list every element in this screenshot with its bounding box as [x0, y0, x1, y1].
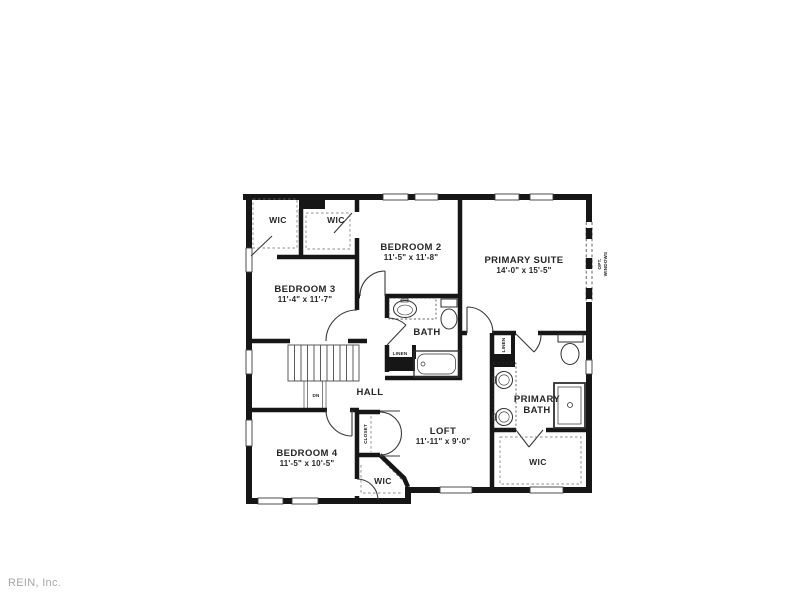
- primary-shower-drain: [568, 403, 573, 408]
- window-bottom-1: [258, 498, 283, 504]
- room-label-bedroom2: BEDROOM 2: [380, 242, 441, 253]
- primary-sink-2-basin: [499, 412, 509, 422]
- label-opt-windows-1: OPT.: [597, 258, 602, 269]
- window-bottom-4: [530, 487, 563, 493]
- window-right-1: [586, 360, 592, 374]
- stairs-outline: [288, 345, 359, 381]
- room-dims-bedroom4: 11'-5" x 10'-5": [280, 459, 335, 468]
- wall-jog-wic: [299, 194, 325, 209]
- bath-toilet-bowl: [441, 309, 457, 329]
- bath-toilet-tank: [441, 299, 457, 307]
- door-primary-bath: [516, 334, 541, 352]
- room-dims-loft: 11'-11" x 9'-0": [416, 437, 470, 446]
- optional-windows: [586, 222, 592, 302]
- primary-toilet-bowl: [561, 344, 579, 365]
- room-dims-primary-suite: 14'-0" x 15'-5": [496, 266, 551, 275]
- label-stairs-down: DN: [312, 393, 320, 398]
- window-top-3: [495, 194, 519, 200]
- bath-sink-basin: [398, 305, 413, 315]
- label-linen-primary: LINEN: [501, 337, 506, 352]
- room-label-primary-bath-2: BATH: [523, 405, 550, 416]
- room-label-loft: LOFT: [430, 426, 456, 437]
- door-primary-suite: [467, 307, 493, 333]
- label-linen-bath: LINEN: [393, 351, 408, 356]
- window-left-2: [246, 350, 252, 374]
- room-label-primary-suite: PRIMARY SUITE: [484, 255, 563, 266]
- window-left-3: [246, 420, 252, 446]
- primary-shower: [554, 383, 585, 428]
- door-bath: [387, 318, 406, 345]
- room-label-bath: BATH: [413, 327, 440, 338]
- room-dims-bedroom2: 11'-5" x 11'-8": [384, 253, 438, 262]
- primary-sink-1: [496, 372, 513, 389]
- primary-sink-2: [496, 409, 513, 426]
- window-top-4: [530, 194, 553, 200]
- room-label-hall: HALL: [357, 387, 384, 398]
- window-top-1: [383, 194, 408, 200]
- label-closet: CLOSET: [363, 424, 368, 444]
- floor-plan: WIC WIC BEDROOM 2 11'-5" x 11'-8" BEDROO…: [0, 0, 800, 600]
- wall-chunk-linen-primary: [491, 354, 515, 367]
- stairs: [288, 345, 359, 408]
- window-bottom-2: [292, 498, 318, 504]
- bath-tub-drain: [421, 362, 425, 366]
- window-bottom-3: [440, 487, 472, 493]
- wall-chunk-linen-bath: [385, 357, 415, 371]
- door-bedroom4: [326, 410, 352, 436]
- window-left-1: [246, 248, 252, 272]
- room-label-primary-bath-1: PRIMARY: [514, 394, 561, 405]
- room-label-bedroom4: BEDROOM 4: [276, 448, 337, 459]
- door-bedroom2: [360, 271, 385, 296]
- optional-window-mullion-3: [586, 288, 592, 299]
- room-label-bedroom3: BEDROOM 3: [274, 284, 335, 295]
- watermark: REIN, Inc.: [8, 577, 61, 589]
- bath-tub-basin: [418, 354, 456, 374]
- door-wic-a: [251, 236, 272, 256]
- primary-shower-pan: [558, 387, 581, 424]
- room-label-wic-bedroom4: WIC: [374, 476, 392, 486]
- window-top-2: [415, 194, 438, 200]
- room-label-wic-a: WIC: [269, 215, 287, 225]
- primary-sink-1-basin: [499, 375, 509, 385]
- optional-window-mullion-1: [586, 228, 592, 239]
- stairs-treads: [295, 345, 354, 381]
- room-dims-bedroom3: 11'-4" x 11'-7": [278, 295, 332, 304]
- door-closet-double: [380, 411, 402, 456]
- floor-plan-page: WIC WIC BEDROOM 2 11'-5" x 11'-8" BEDROO…: [0, 0, 800, 600]
- label-opt-windows-2: WINDOWS: [603, 252, 608, 277]
- door-wic-primary: [516, 430, 543, 447]
- optional-window-mullion-2: [586, 258, 592, 269]
- room-label-wic-primary: WIC: [529, 457, 547, 467]
- door-bedroom3: [326, 310, 357, 341]
- room-label-wic-b: WIC: [327, 215, 345, 225]
